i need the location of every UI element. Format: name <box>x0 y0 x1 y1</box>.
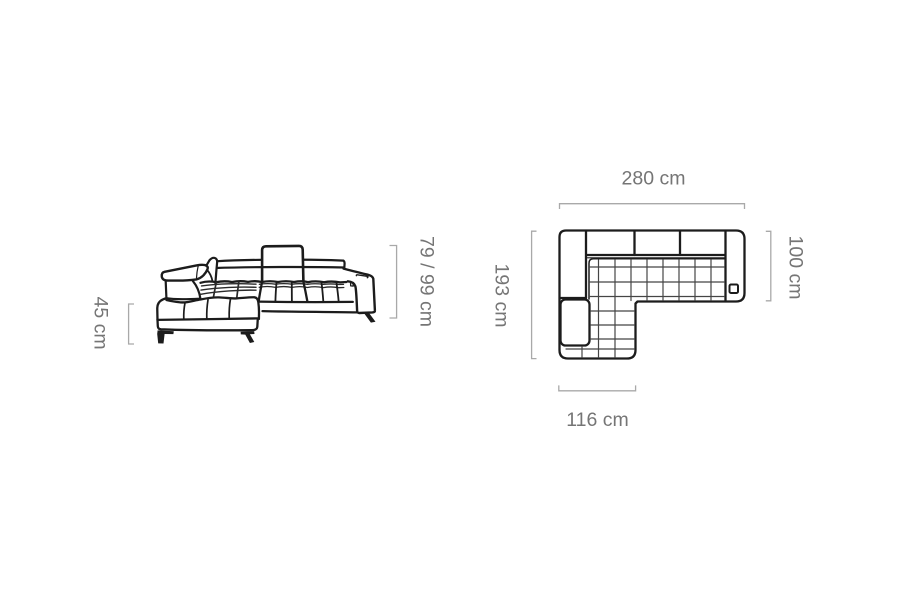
svg-text:79 / 99 cm: 79 / 99 cm <box>416 236 438 327</box>
svg-text:193 cm: 193 cm <box>491 264 513 328</box>
svg-text:116 cm: 116 cm <box>566 409 629 431</box>
svg-text:100 cm: 100 cm <box>785 236 807 300</box>
svg-text:280 cm: 280 cm <box>622 168 686 190</box>
svg-text:45 cm: 45 cm <box>90 297 112 350</box>
